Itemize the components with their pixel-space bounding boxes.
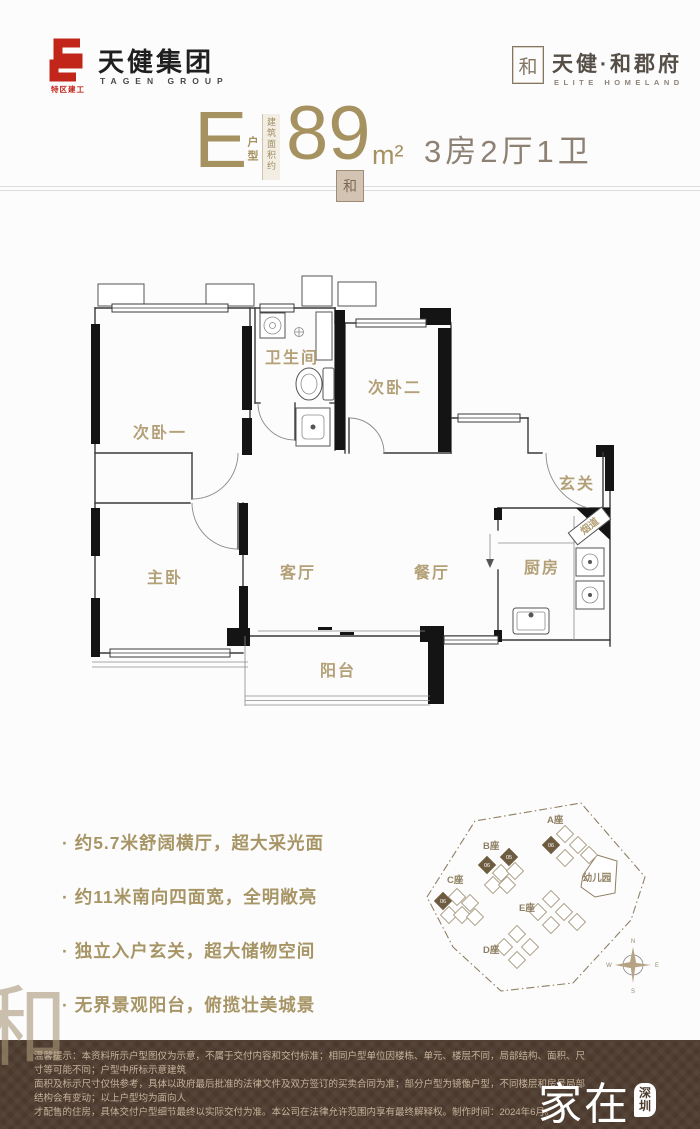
tagen-logo-subtext: 特区建工 <box>40 84 96 95</box>
room-label-dining-room: 餐厅 <box>413 563 450 582</box>
area-prefix-label: 建筑面积约 <box>262 114 280 180</box>
area-unit: m² <box>372 140 403 171</box>
brand-name: 天健·和郡府 <box>552 48 682 78</box>
structural-columns <box>91 308 614 704</box>
block-d-label: D座 <box>483 944 500 956</box>
parapet-outlines <box>98 276 376 306</box>
block-c-cluster: 06 <box>435 889 484 926</box>
brand-name-en: ELITE HOMELAND <box>554 78 684 87</box>
block-c-label: C座 <box>447 874 464 886</box>
brand-seal-icon: 和 <box>512 46 544 84</box>
watermark-city-bubble: 深圳 <box>634 1083 656 1117</box>
room-label-kitchen: 厨房 <box>524 558 560 577</box>
floor-plan: 烟道 次卧一 卫生间 次卧二 玄关 主卧 客厅 餐厅 厨房 阳台 <box>80 268 620 730</box>
svg-text:S: S <box>631 989 635 995</box>
svg-text:06: 06 <box>440 899 446 905</box>
compass-icon: N E S W <box>606 939 659 995</box>
feature-item: 约11米南向四面宽，全明敞亮 <box>62 884 392 909</box>
floorplan-walls <box>95 308 610 653</box>
room-label-balcony: 阳台 <box>320 661 356 680</box>
disclaimer-line: 面积及标示尺寸仅供参考，具体以政府最后批准的法律文件及双方签订的买卖合同为准；部… <box>34 1078 586 1106</box>
svg-text:06: 06 <box>548 843 554 849</box>
block-a-label: A座 <box>547 814 564 826</box>
disclaimer-line: 温馨提示：本资料所示户型图仅为示意，不属于交付内容和交付标准；相同户型单位因楼栋… <box>34 1050 586 1078</box>
divider-seal-icon: 和 <box>336 170 364 202</box>
door-arcs <box>192 403 603 549</box>
svg-text:E: E <box>655 963 659 969</box>
feature-item: 约5.7米舒阔横厅，超大采光面 <box>62 830 392 855</box>
flyer-page: 特区建工 天健集团 TAGEN GROUP 和 天健·和郡府 ELITE HOM… <box>0 0 700 1129</box>
forum-watermark: 家在深圳 bbs.szhome.com <box>538 1068 683 1129</box>
room-label-foyer: 玄关 <box>559 474 595 493</box>
kindergarten-label: 幼儿园 <box>583 872 612 884</box>
tagen-group-name-en: TAGEN GROUP <box>100 76 229 86</box>
tagen-logo-icon <box>44 38 90 82</box>
sliding-door <box>258 627 425 635</box>
area-value: 89 <box>286 96 371 172</box>
block-e-label: E座 <box>519 902 535 914</box>
block-b-label: B座 <box>483 840 500 852</box>
svg-text:N: N <box>631 939 635 945</box>
room-label-master-bedroom: 主卧 <box>147 568 183 587</box>
feature-item: 无界景观阳台，俯揽壮美城景 <box>62 992 392 1017</box>
balcony-railing <box>92 636 430 706</box>
room-label-bathroom: 卫生间 <box>265 348 319 367</box>
unit-type-label: 户型 <box>244 136 260 164</box>
feature-item: 独立入户玄关，超大储物空间 <box>62 938 392 963</box>
svg-text:06: 06 <box>484 863 490 869</box>
watermark-main: 家在 <box>538 1068 630 1129</box>
block-a-cluster: 06 <box>543 826 598 867</box>
room-label-living-room: 客厅 <box>280 563 316 582</box>
disclaimer-text: 温馨提示：本资料所示户型图仅为示意，不属于交付内容和交付标准；相同户型单位因楼栋… <box>34 1050 586 1120</box>
tagen-group-name: 天健集团 <box>98 42 214 79</box>
room-label-bedroom-2: 次卧二 <box>368 378 422 397</box>
disclaimer-line: 才配售的住房，具体交付户型细节最终以实际交付为准。本公司在法律允许范围内享有最终… <box>34 1106 586 1120</box>
svg-text:05: 05 <box>506 855 512 861</box>
room-config: 3房2厅1卫 <box>424 126 593 171</box>
svg-text:W: W <box>606 963 612 969</box>
block-d-cluster <box>496 926 539 969</box>
bathroom-fixtures <box>260 312 334 446</box>
unit-letter: E <box>194 100 247 180</box>
block-b-cluster: 06 05 <box>479 849 524 894</box>
feature-list: 约5.7米舒阔横厅，超大采光面 约11米南向四面宽，全明敞亮 独立入户玄关，超大… <box>62 830 392 1046</box>
room-label-bedroom-1: 次卧一 <box>133 423 187 442</box>
site-plan: 幼儿园 06 A座 06 05 B座 <box>425 795 695 1023</box>
block-e-cluster <box>530 891 586 934</box>
